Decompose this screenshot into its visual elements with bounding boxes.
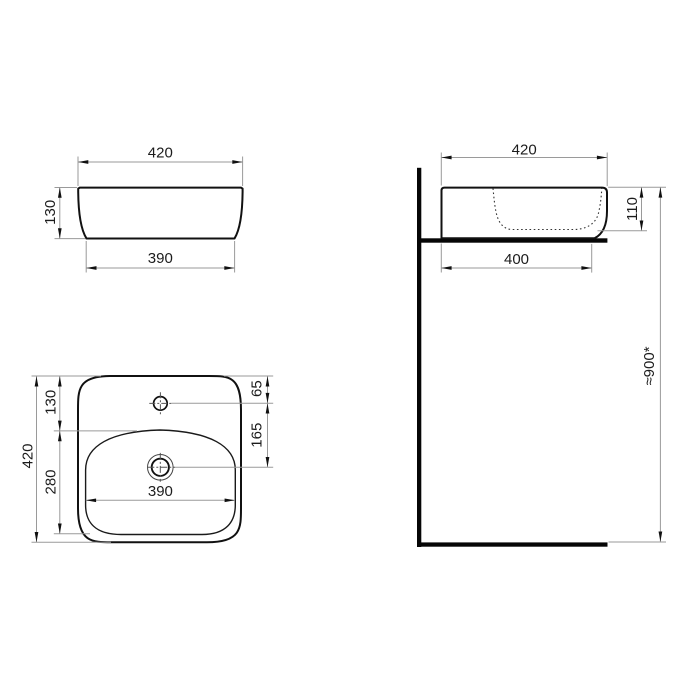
svg-text:420: 420 — [20, 443, 37, 468]
svg-text:280: 280 — [42, 469, 59, 494]
svg-text:420: 420 — [148, 145, 173, 162]
svg-text:390: 390 — [148, 250, 173, 267]
svg-text:165: 165 — [249, 423, 266, 448]
svg-text:65: 65 — [249, 380, 266, 397]
svg-text:420: 420 — [512, 141, 537, 158]
svg-text:130: 130 — [42, 200, 59, 225]
svg-text:130: 130 — [42, 390, 59, 415]
svg-text:400: 400 — [504, 251, 529, 268]
svg-text:≈900*: ≈900* — [641, 346, 658, 385]
svg-text:390: 390 — [148, 483, 173, 500]
svg-text:110: 110 — [624, 197, 641, 221]
